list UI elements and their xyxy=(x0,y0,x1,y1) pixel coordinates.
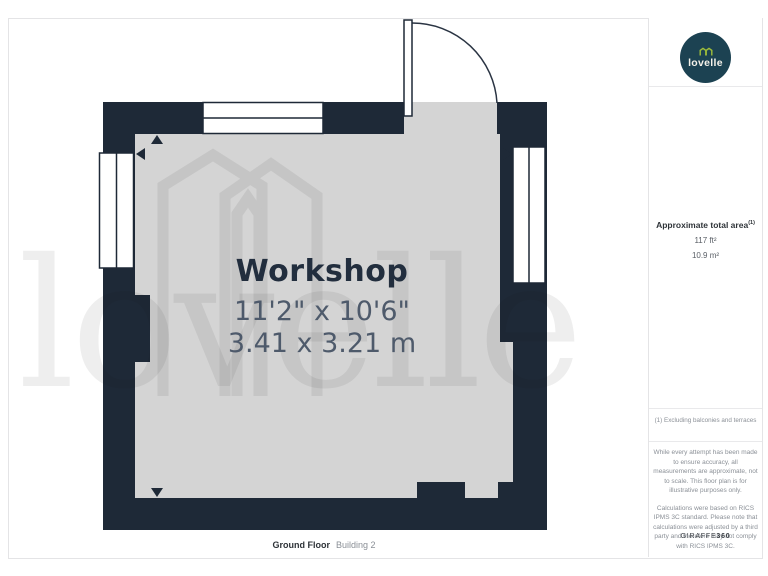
building-name: Building 2 xyxy=(336,540,376,550)
floor-name: Ground Floor xyxy=(272,540,330,550)
wall-pilaster-left xyxy=(135,295,150,362)
giraffe360-name: GIRAFFE xyxy=(680,533,716,540)
lovelle-logo: lovelle xyxy=(680,32,731,83)
logo-text: lovelle xyxy=(688,57,723,69)
window-top xyxy=(203,103,323,134)
sidebar-divider xyxy=(649,86,762,87)
door-opening xyxy=(404,102,497,134)
total-area-heading: Approximate total area(1) xyxy=(649,220,762,230)
logo-section: lovelle xyxy=(649,18,762,86)
sidebar-divider xyxy=(649,408,762,409)
info-sidebar: lovelle Approximate total area(1) 117 ft… xyxy=(648,18,762,557)
total-area-block: Approximate total area(1) 117 ft² 10.9 m… xyxy=(649,220,762,260)
disclaimer-paragraph-1: While every attempt has been made to ens… xyxy=(652,448,759,496)
door-swing-arc xyxy=(412,23,497,103)
window-left xyxy=(100,153,134,268)
total-area-footnote-marker: (1) xyxy=(748,220,755,226)
dimension-arrow-up-icon xyxy=(151,135,163,144)
area-footnote: (1) Excluding balconies and terraces xyxy=(649,417,762,424)
giraffe360-suffix: 360 xyxy=(716,533,730,540)
dimension-arrow-left-icon xyxy=(136,148,145,160)
total-area-imperial: 117 ft² xyxy=(649,236,762,245)
door-leaf xyxy=(404,20,412,116)
logo-house-icon xyxy=(699,47,713,56)
disclaimer-block: While every attempt has been made to ens… xyxy=(652,448,759,559)
dimension-arrow-down-icon xyxy=(151,488,163,497)
room-floor-extension xyxy=(500,342,513,482)
total-area-heading-text: Approximate total area xyxy=(656,220,748,230)
giraffe360-brand: GIRAFFE360 xyxy=(649,533,762,540)
disclaimer-paragraph-2: Calculations were based on RICS IPMS 3C … xyxy=(652,504,759,552)
total-area-metric: 10.9 m² xyxy=(649,251,762,260)
dimension-arrow-right-icon xyxy=(503,148,512,160)
sidebar-divider xyxy=(649,441,762,442)
floor-label: Ground FloorBuilding 2 xyxy=(0,540,648,550)
wall-step-bottom-right xyxy=(498,482,514,499)
window-right xyxy=(513,147,545,283)
wall-pilaster-bottom xyxy=(417,482,465,499)
